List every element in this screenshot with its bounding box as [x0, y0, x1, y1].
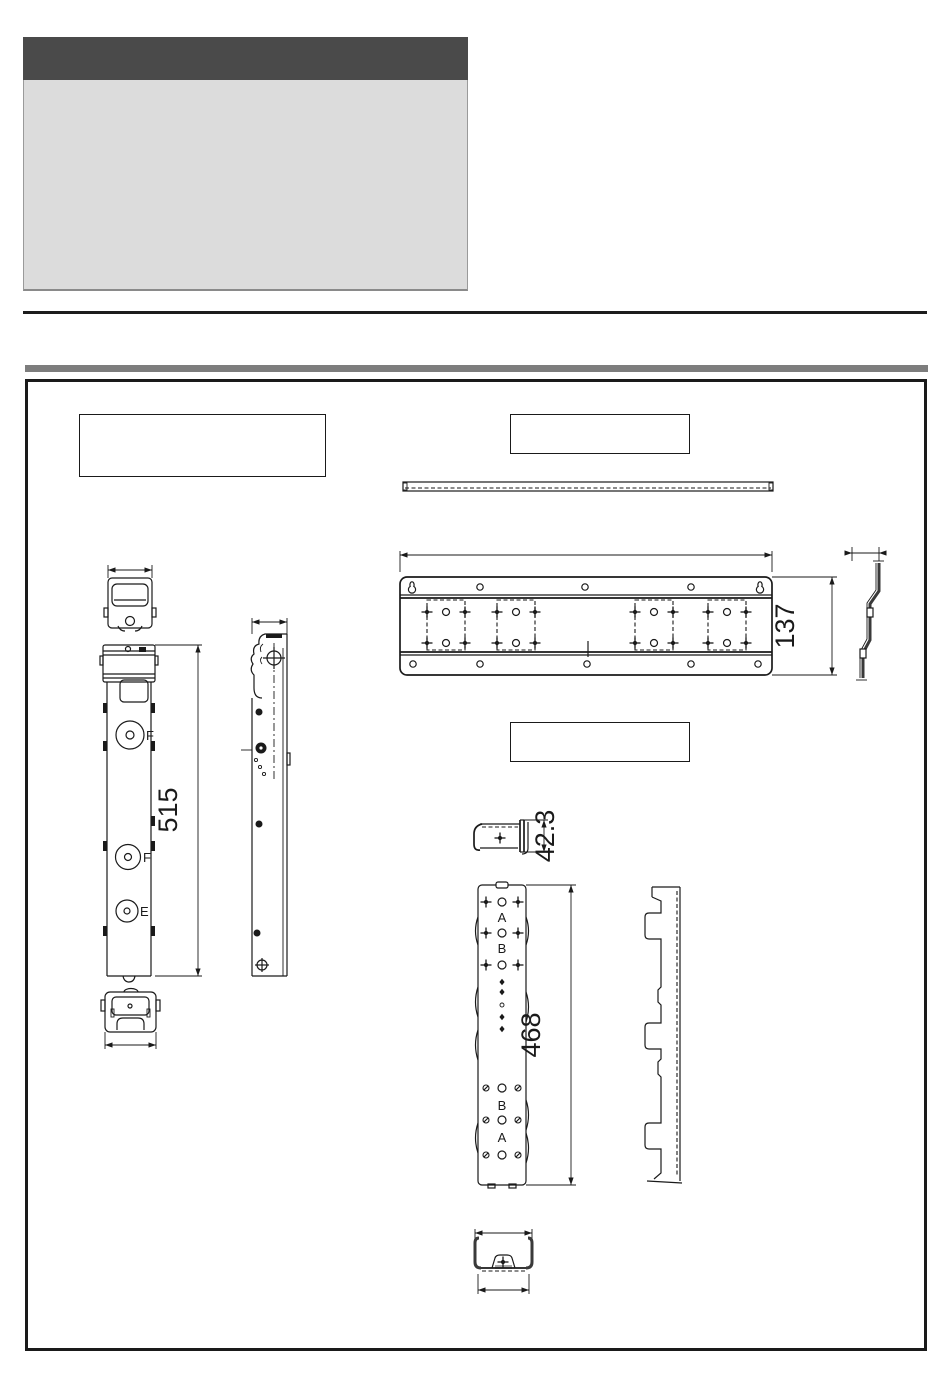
left-bracket-top-view	[104, 565, 156, 631]
wall-plate-width-dim	[400, 551, 772, 572]
rail-label-a-top: A	[498, 910, 507, 925]
wall-plate-height-dim: 137	[770, 577, 837, 675]
horizontal-rule	[23, 311, 927, 314]
wall-plate-drawing-group: 137	[395, 473, 895, 698]
callout-box-left	[79, 414, 326, 477]
left-bracket-bottom-view	[101, 989, 160, 1050]
left-bracket-drawing-group: F F E 515	[55, 548, 305, 1063]
dim-468: 468	[516, 1012, 546, 1057]
wall-plate-top-view	[403, 482, 773, 491]
header-text-panel	[23, 80, 468, 291]
hole-label-f2: F	[143, 850, 151, 865]
left-bracket-front-view: F F E 515	[100, 645, 202, 982]
vertical-rail-front-view: A B B A 468	[476, 882, 577, 1188]
rail-label-b-top: B	[498, 941, 507, 956]
page-header-bar	[23, 37, 468, 80]
dim-42-3: 42.3	[530, 810, 560, 863]
rail-label-a-bottom: A	[498, 1130, 507, 1145]
manual-dimensions-page: F F E 515	[0, 0, 950, 1375]
wall-plate-side-view	[845, 547, 887, 680]
vertical-rail-side-view	[645, 887, 682, 1183]
hole-label-f1: F	[146, 728, 154, 743]
hook-spacer-top-view: 42.3	[468, 798, 588, 870]
vertical-rail-drawing-group: A B B A 468	[468, 873, 693, 1205]
rail-bottom-view	[462, 1222, 552, 1307]
left-bracket-side-view	[241, 618, 290, 976]
callout-box-right-top	[510, 414, 690, 454]
rail-label-b-bottom: B	[498, 1098, 507, 1113]
dim-515: 515	[153, 787, 183, 832]
wall-plate-front-view	[400, 577, 772, 675]
dim-137: 137	[770, 603, 800, 648]
section-divider-bar	[25, 365, 928, 372]
callout-box-right-middle	[510, 722, 690, 762]
hole-label-e: E	[140, 904, 149, 919]
